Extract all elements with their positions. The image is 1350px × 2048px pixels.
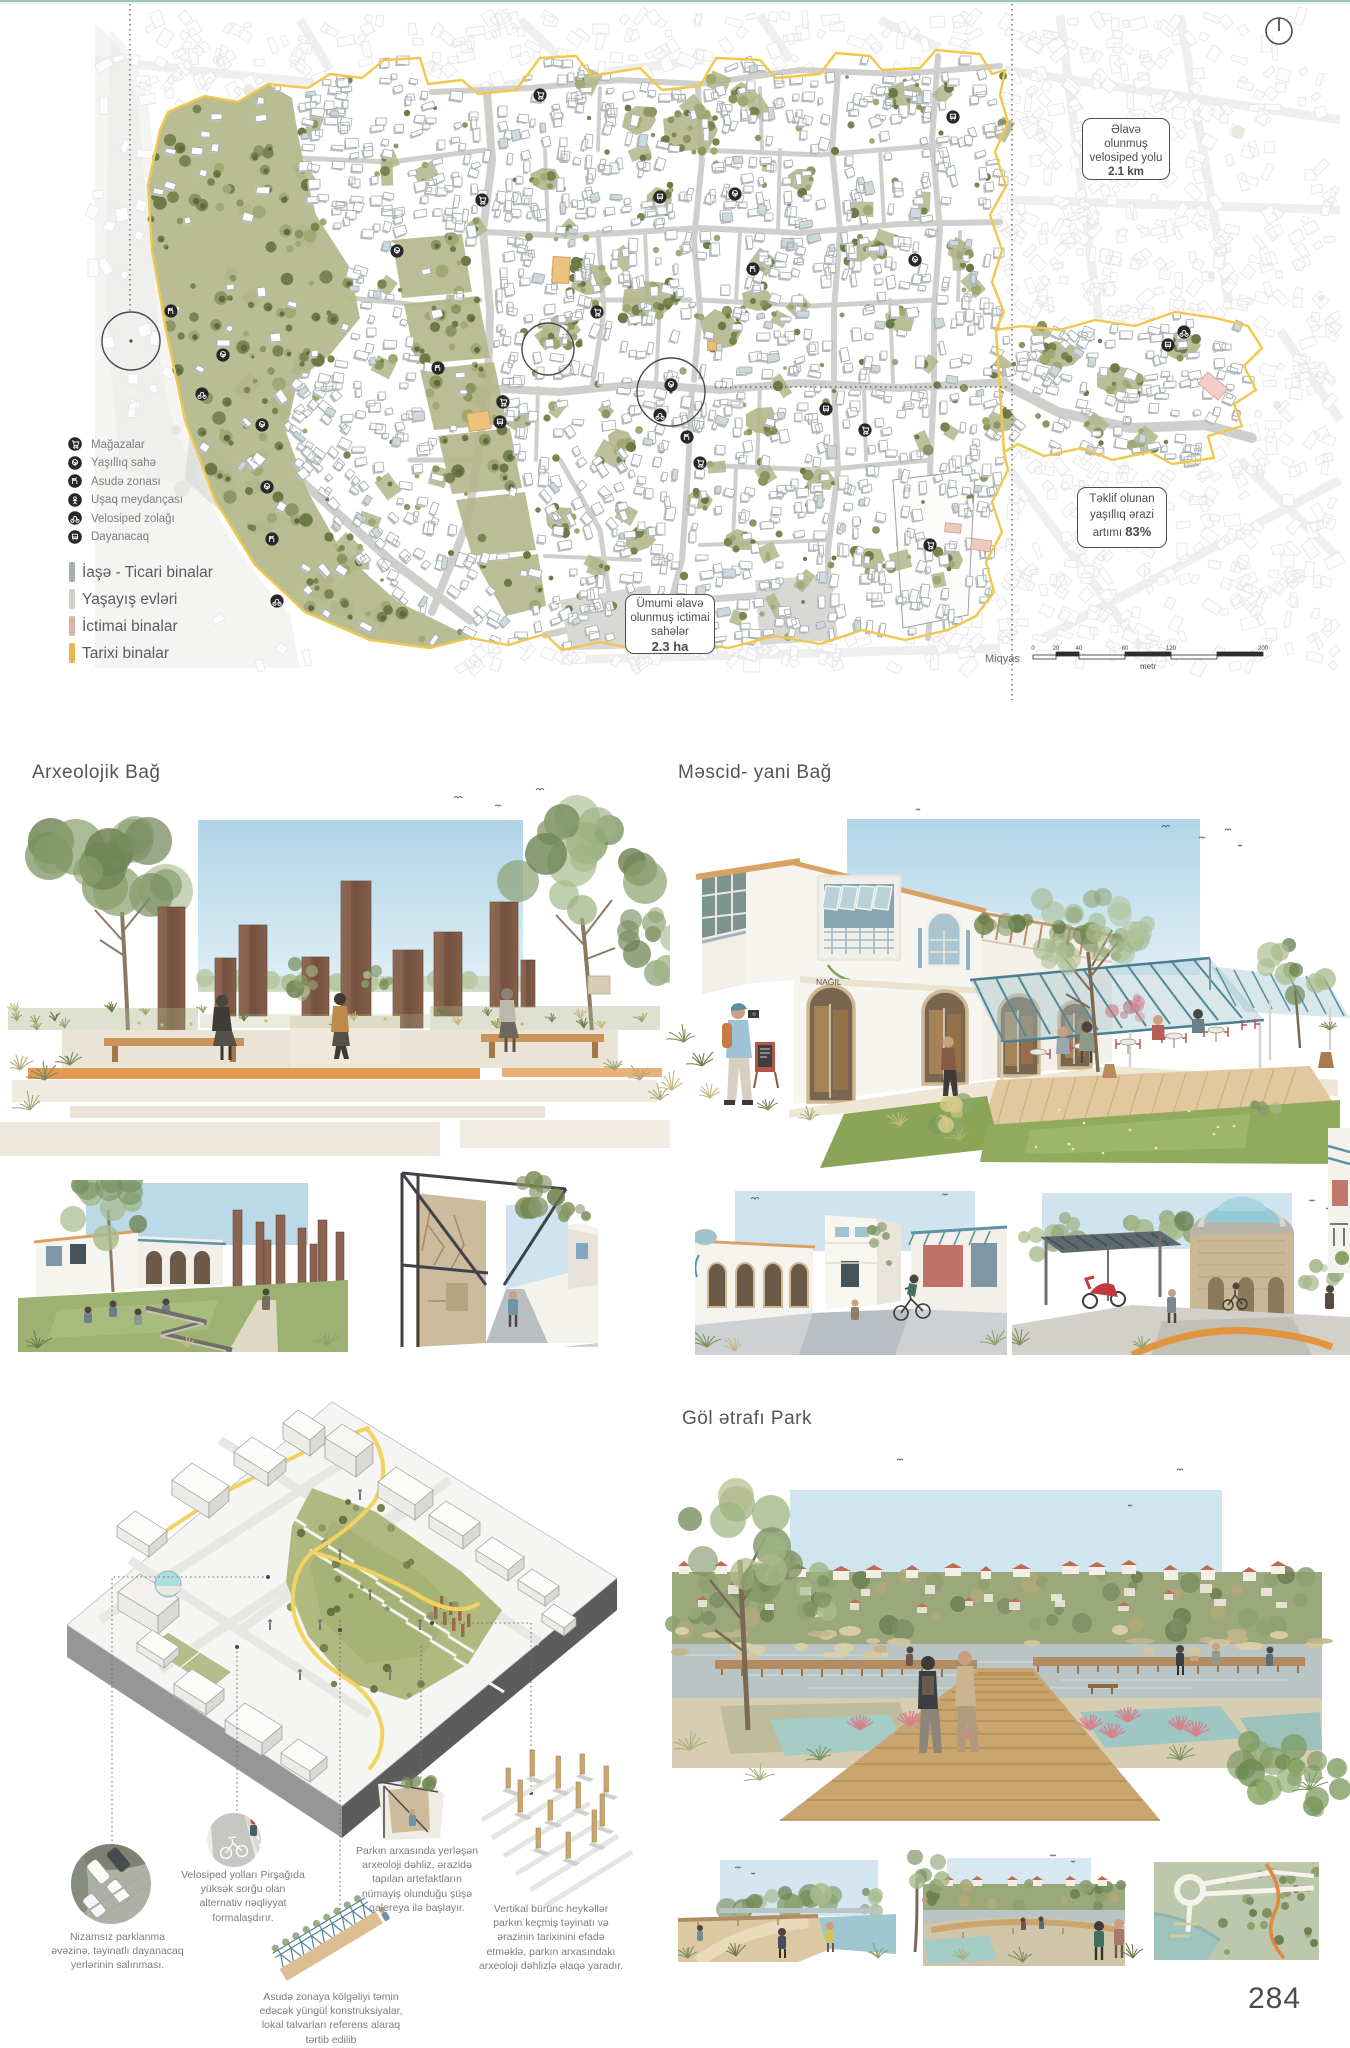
svg-text:Yaşayış evləri: Yaşayış evləri <box>82 591 177 608</box>
svg-text:NAĞIL: NAĞIL <box>816 977 842 987</box>
svg-text:Yaşıllıq sahə: Yaşıllıq sahə <box>91 457 156 469</box>
svg-text:200: 200 <box>1258 646 1269 652</box>
svg-text:Miqyas: Miqyas <box>985 653 1020 665</box>
svg-text:Mağazalar: Mağazalar <box>91 439 145 451</box>
svg-text:Uşaq meydançası: Uşaq meydançası <box>91 494 183 506</box>
svg-text:İaşə - Ticari binalar: İaşə - Ticari binalar <box>82 563 213 581</box>
svg-text:Dayanacaq: Dayanacaq <box>91 531 149 543</box>
svg-text:Asudə zonası: Asudə zonası <box>91 476 161 488</box>
svg-text:Tarixi binalar: Tarixi binalar <box>82 645 169 662</box>
svg-text:metr: metr <box>1140 662 1156 671</box>
svg-text:120: 120 <box>1166 646 1177 652</box>
svg-text:20: 20 <box>1053 646 1060 652</box>
svg-text:İctimai binalar: İctimai binalar <box>82 617 178 635</box>
svg-text:80: 80 <box>1122 646 1129 652</box>
svg-text:40: 40 <box>1076 646 1083 652</box>
svg-text:Velosiped zolağı: Velosiped zolağı <box>91 513 175 525</box>
svg-text:0: 0 <box>1031 646 1035 652</box>
